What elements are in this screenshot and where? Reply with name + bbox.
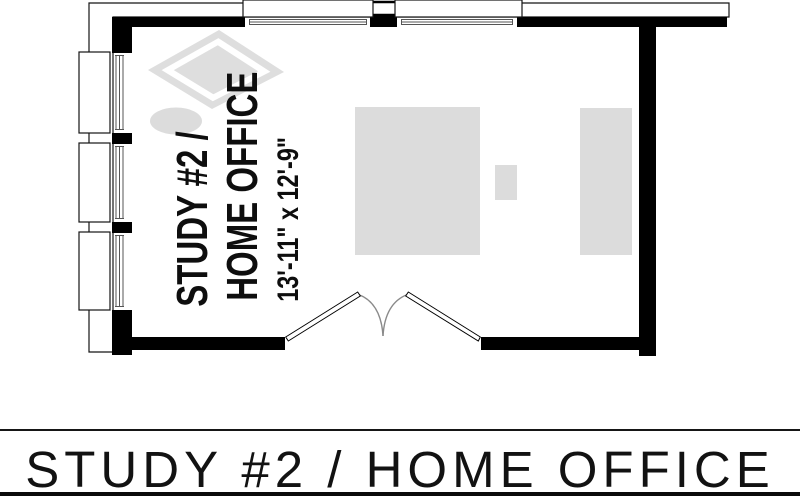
- bookcase: [580, 108, 632, 255]
- door-swing-arc-left: [359, 295, 384, 337]
- bottom-wall-right-segment: [481, 337, 656, 350]
- room-label-line2: HOME OFFICE: [218, 99, 268, 339]
- left-window-middle-sill: [79, 143, 110, 222]
- floor-plan-drawing: [0, 0, 800, 430]
- left-wall-bottom-corner: [112, 310, 132, 355]
- top-wall-left-segment: [113, 17, 245, 27]
- left-window-bottom-sill: [79, 232, 110, 310]
- desk: [355, 107, 480, 255]
- floor-plan-page: STUDY #2 / HOME OFFICE 13'-11" x 12'-9" …: [0, 0, 800, 500]
- room-dimensions: 13'-11" x 12'-9": [268, 99, 310, 339]
- left-window-top-glass: [115, 55, 124, 130]
- top-wall-pier-cap: [372, 2, 396, 15]
- left-window-bottom-glass: [115, 235, 124, 307]
- door-leaf-right: [406, 292, 481, 341]
- left-windows: [79, 52, 124, 310]
- desk-chair: [495, 165, 517, 200]
- top-window-left-glass: [249, 19, 367, 25]
- left-wall-top-corner: [112, 17, 132, 53]
- right-wall: [639, 20, 656, 356]
- caption-bottom-rule: [0, 492, 800, 496]
- room-label-line1: STUDY #2 /: [168, 99, 218, 339]
- room-label: STUDY #2 / HOME OFFICE 13'-11" x 12'-9": [168, 99, 312, 339]
- left-wall-mullion-lower: [112, 222, 132, 233]
- left-window-top-sill: [79, 52, 110, 133]
- top-wall-center-pier: [370, 15, 397, 27]
- top-window-right-glass: [401, 19, 513, 25]
- door-swing-arc-right: [383, 295, 408, 337]
- caption-top-rule: [0, 429, 800, 431]
- left-window-middle-glass: [115, 146, 124, 219]
- double-door: [286, 292, 481, 341]
- top-window-left-sill: [243, 0, 373, 17]
- caption-title: STUDY #2 / HOME OFFICE: [0, 445, 800, 492]
- top-window-right-sill: [395, 0, 522, 17]
- top-wall-right-segment: [517, 17, 727, 27]
- left-wall-mullion-upper: [112, 133, 132, 144]
